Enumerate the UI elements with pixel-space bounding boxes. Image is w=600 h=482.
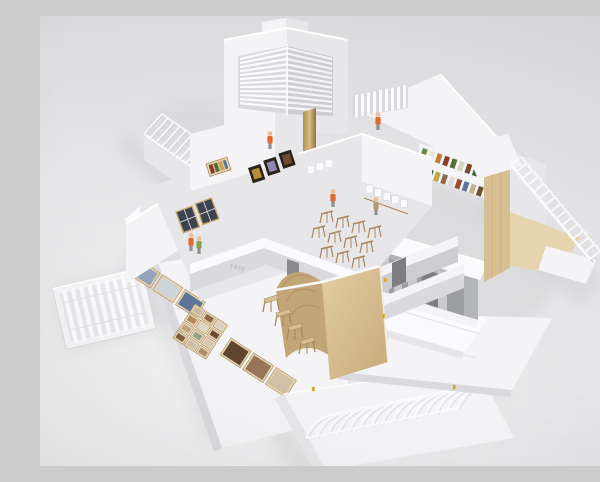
- stair-rib: [556, 211, 566, 219]
- figure-head: [374, 197, 379, 202]
- figure-body: [267, 136, 272, 144]
- rail-frame: [400, 199, 407, 207]
- figure-body: [196, 241, 201, 249]
- rail-frame: [383, 192, 390, 200]
- screen-slat: [385, 88, 388, 111]
- screen-slat: [355, 94, 358, 117]
- figure-body: [188, 238, 193, 246]
- brass-hinge: [312, 387, 315, 391]
- figure-body: [330, 194, 335, 202]
- figure-head: [197, 236, 202, 241]
- stair-rib: [590, 251, 600, 259]
- stair-rib: [551, 204, 561, 212]
- pavilion-panel: [322, 266, 388, 380]
- studio-photo-architectural-model: White card architectural scale model of …: [40, 16, 600, 466]
- rail-frame: [392, 196, 399, 204]
- model-illustration: FREE: [40, 16, 600, 466]
- screen-slat: [367, 92, 370, 115]
- screen-slat: [361, 93, 364, 116]
- stair-rib: [584, 244, 594, 252]
- stair-rib: [562, 217, 572, 225]
- screen-slat: [373, 91, 376, 114]
- figure-head: [189, 233, 194, 238]
- rail-frame: [366, 185, 373, 193]
- brass-hinge: [382, 314, 385, 318]
- figure-head: [331, 189, 336, 194]
- stair-rib: [579, 238, 589, 246]
- screen-slat: [403, 85, 406, 108]
- stair-rib: [567, 224, 577, 232]
- figure-head: [268, 131, 273, 136]
- screen-slat: [391, 87, 394, 110]
- screen-slat: [397, 86, 400, 109]
- rail-frame: [375, 189, 382, 197]
- figure-head: [376, 112, 381, 117]
- figure-body: [373, 202, 378, 210]
- stair-rib: [545, 197, 555, 205]
- figure-body: [375, 117, 380, 125]
- screen-slat: [379, 90, 382, 113]
- louver-slat: [240, 90, 287, 93]
- brass-hinge: [384, 278, 387, 282]
- brass-hinge: [453, 385, 456, 389]
